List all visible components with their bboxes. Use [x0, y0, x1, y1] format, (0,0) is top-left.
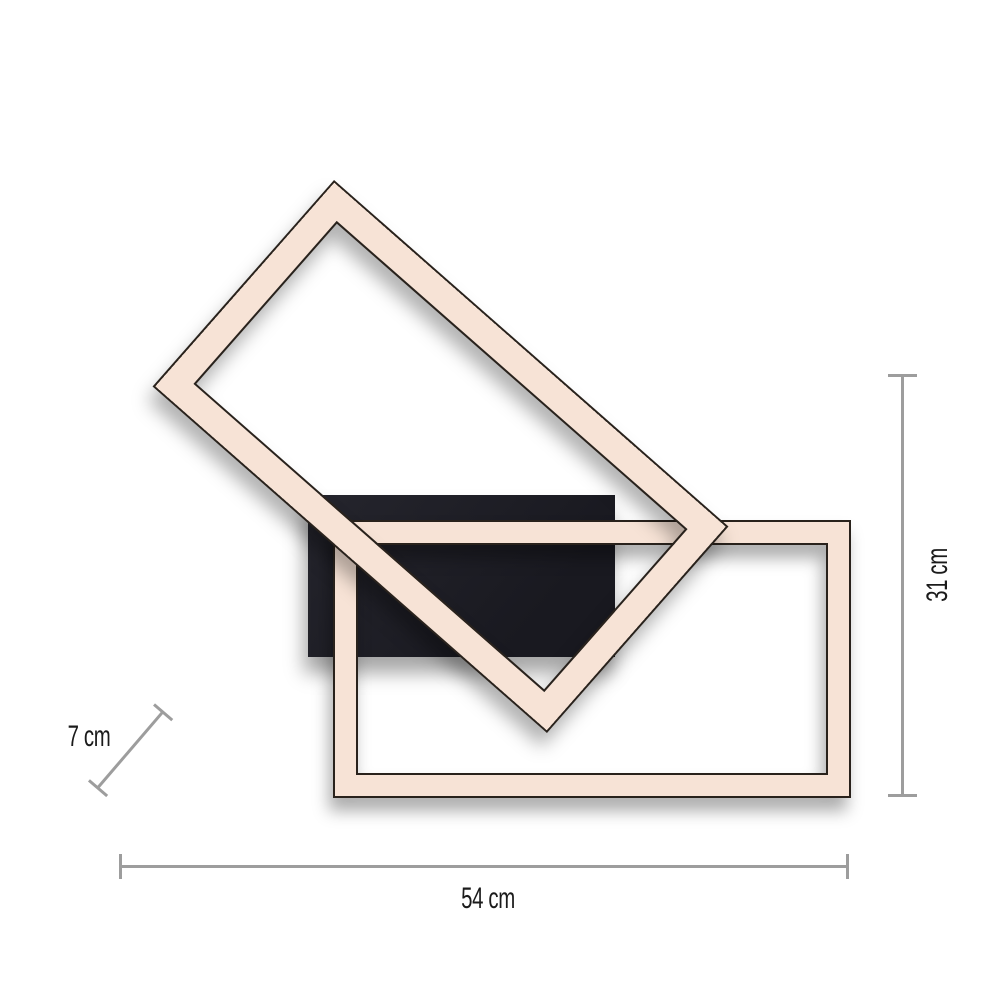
depth-dimension-value: 7 cm — [68, 722, 111, 752]
mounting-plate-layer — [0, 0, 1000, 1000]
horizontal-led-frame — [335, 522, 849, 796]
width-dimension-label: 54 cm — [448, 884, 527, 914]
dimension-tick — [88, 779, 108, 797]
height-dimension-label: 31 cm — [923, 535, 953, 614]
dimension-tick — [119, 854, 122, 879]
dimension-tick — [888, 374, 917, 377]
rotated-frame-layer — [0, 0, 1000, 1000]
dimension-tick — [153, 703, 173, 721]
dimension-tick — [846, 854, 849, 879]
horizontal-frame-layer — [0, 0, 1000, 1000]
dimension-tick — [888, 794, 917, 797]
height-dimension-value: 31 cm — [923, 548, 953, 602]
height-dimension-line — [901, 375, 904, 796]
mounting-plate — [308, 495, 615, 657]
rotated-led-frame — [155, 183, 725, 730]
width-dimension-value: 54 cm — [461, 884, 515, 914]
width-dimension-line — [120, 865, 848, 868]
product-dimension-diagram: 54 cm 31 cm 7 cm — [0, 0, 1000, 1000]
depth-dimension-label: 7 cm — [57, 722, 120, 752]
